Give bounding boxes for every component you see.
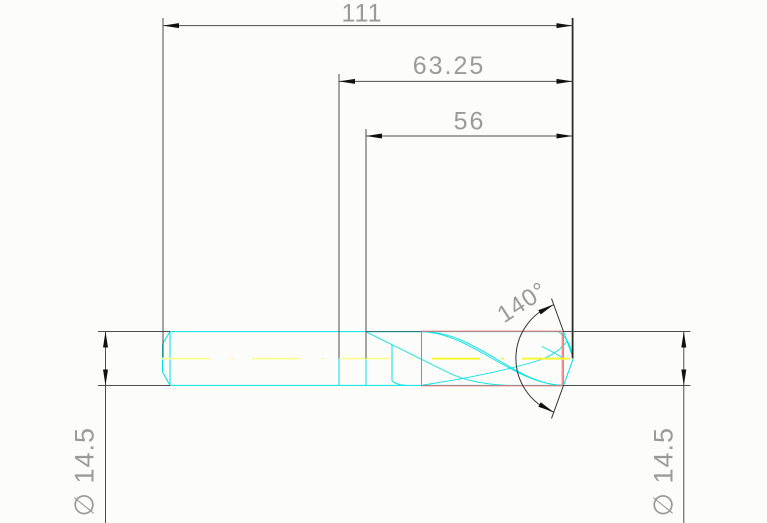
svg-text:63.25: 63.25 bbox=[413, 52, 486, 80]
svg-text:111: 111 bbox=[341, 0, 382, 28]
svg-text:∅ 14.5: ∅ 14.5 bbox=[649, 427, 679, 517]
svg-text:56: 56 bbox=[454, 108, 486, 136]
svg-text:∅ 14.5: ∅ 14.5 bbox=[70, 427, 100, 517]
